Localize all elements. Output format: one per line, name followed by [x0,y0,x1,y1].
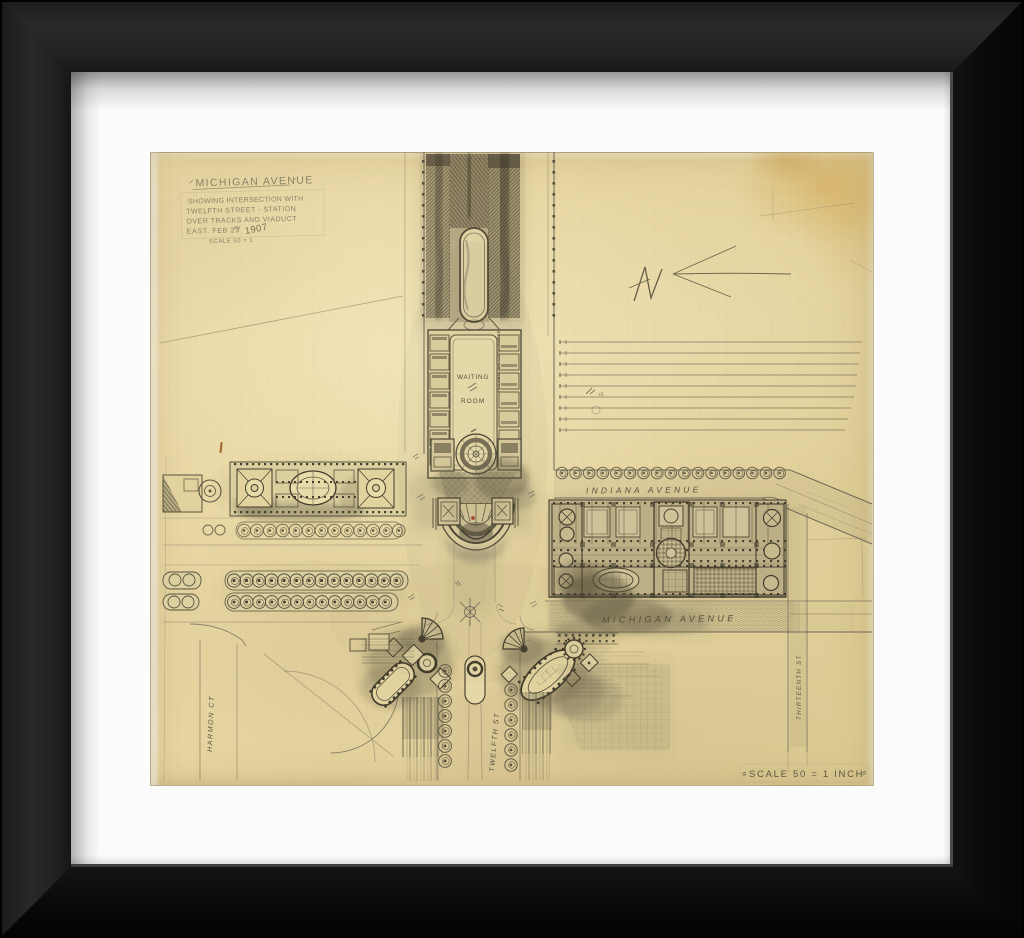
svg-text:RD: RD [234,225,241,230]
svg-text:SCALE 50 = 1: SCALE 50 = 1 [209,238,253,245]
svg-text:OVER TRACKS AND VIADUCT: OVER TRACKS AND VIADUCT [186,216,297,226]
svg-text:MICHIGAN AVENUE: MICHIGAN AVENUE [195,174,314,189]
svg-text:HARMON CT: HARMON CT [207,695,216,752]
svg-text:INDIANA AVENUE: INDIANA AVENUE [586,484,702,495]
svg-text:SHOWING INTERSECTION WITH: SHOWING INTERSECTION WITH [188,196,304,206]
svg-text:SCALE 50 = 1 INCH: SCALE 50 = 1 INCH [749,769,864,780]
svg-text:+6: +6 [598,392,604,398]
svg-text:TWELFTH STREET - STATION: TWELFTH STREET - STATION [186,206,296,216]
svg-text:THIRTEENTH ST: THIRTEENTH ST [796,654,803,720]
svg-text:EAST. FEB 23: EAST. FEB 23 [187,227,240,235]
